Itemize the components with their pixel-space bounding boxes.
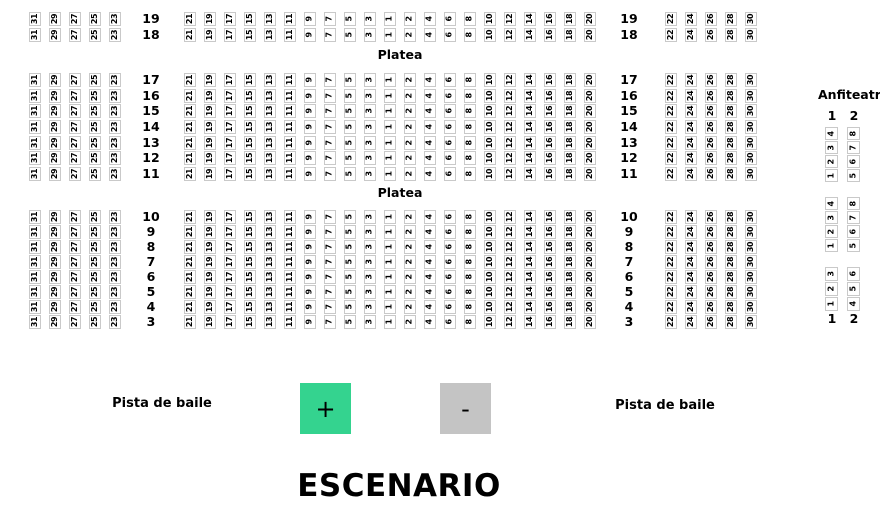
seat[interactable]: 15 — [244, 89, 256, 103]
seat[interactable]: 22 — [665, 255, 677, 269]
seat[interactable]: 29 — [49, 73, 61, 87]
seat[interactable]: 17 — [224, 89, 236, 103]
seat[interactable]: 28 — [725, 151, 737, 165]
seat[interactable]: 8 — [464, 12, 476, 26]
seat[interactable]: 8 — [847, 197, 860, 210]
seat[interactable]: 7 — [324, 300, 336, 314]
seat[interactable]: 21 — [184, 104, 196, 118]
seat[interactable]: 8 — [464, 89, 476, 103]
seat[interactable]: 7 — [324, 136, 336, 150]
seat[interactable]: 17 — [224, 240, 236, 254]
seat[interactable]: 31 — [29, 151, 41, 165]
seat[interactable]: 1 — [384, 151, 396, 165]
seat[interactable]: 17 — [224, 255, 236, 269]
seat[interactable]: 4 — [424, 120, 436, 134]
seat[interactable]: 26 — [705, 285, 717, 299]
seat[interactable]: 17 — [224, 225, 236, 239]
seat[interactable]: 1 — [825, 239, 838, 252]
seat[interactable]: 20 — [584, 240, 596, 254]
seat[interactable]: 2 — [825, 282, 838, 296]
seat[interactable]: 7 — [324, 73, 336, 87]
seat[interactable]: 10 — [484, 136, 496, 150]
seat[interactable]: 7 — [324, 240, 336, 254]
seat[interactable]: 20 — [584, 167, 596, 181]
seat[interactable]: 19 — [204, 120, 216, 134]
seat[interactable]: 28 — [725, 120, 737, 134]
seat[interactable]: 9 — [304, 270, 316, 284]
seat[interactable]: 24 — [685, 167, 697, 181]
seat[interactable]: 5 — [344, 136, 356, 150]
seat[interactable]: 23 — [109, 136, 121, 150]
seat[interactable]: 31 — [29, 167, 41, 181]
seat[interactable]: 28 — [725, 167, 737, 181]
seat[interactable]: 27 — [69, 225, 81, 239]
seat[interactable]: 8 — [464, 104, 476, 118]
seat[interactable]: 17 — [224, 136, 236, 150]
seat[interactable]: 10 — [484, 225, 496, 239]
seat[interactable]: 13 — [264, 240, 276, 254]
seat[interactable]: 1 — [384, 104, 396, 118]
seat[interactable]: 4 — [424, 225, 436, 239]
seat[interactable]: 31 — [29, 104, 41, 118]
seat[interactable]: 10 — [484, 210, 496, 224]
seat[interactable]: 15 — [244, 136, 256, 150]
seat[interactable]: 30 — [745, 210, 757, 224]
seat[interactable]: 2 — [404, 315, 416, 329]
seat[interactable]: 15 — [244, 315, 256, 329]
seat[interactable]: 8 — [847, 127, 860, 140]
seat[interactable]: 29 — [49, 240, 61, 254]
seat[interactable]: 2 — [404, 151, 416, 165]
seat[interactable]: 6 — [847, 155, 860, 168]
seat[interactable]: 11 — [284, 300, 296, 314]
seat[interactable]: 12 — [504, 240, 516, 254]
seat[interactable]: 16 — [544, 120, 556, 134]
seat[interactable]: 25 — [89, 89, 101, 103]
seat[interactable]: 22 — [665, 136, 677, 150]
seat[interactable]: 5 — [847, 239, 860, 252]
seat[interactable]: 12 — [504, 225, 516, 239]
seat[interactable]: 18 — [564, 167, 576, 181]
seat[interactable]: 29 — [49, 151, 61, 165]
seat[interactable]: 20 — [584, 151, 596, 165]
seat[interactable]: 30 — [745, 167, 757, 181]
seat[interactable]: 3 — [364, 300, 376, 314]
seat[interactable]: 22 — [665, 120, 677, 134]
seat[interactable]: 21 — [184, 167, 196, 181]
seat[interactable]: 17 — [224, 167, 236, 181]
seat[interactable]: 29 — [49, 120, 61, 134]
seat[interactable]: 29 — [49, 225, 61, 239]
seat[interactable]: 22 — [665, 28, 677, 42]
seat[interactable]: 18 — [564, 12, 576, 26]
seat[interactable]: 11 — [284, 120, 296, 134]
seat[interactable]: 17 — [224, 300, 236, 314]
seat[interactable]: 12 — [504, 315, 516, 329]
seat[interactable]: 2 — [404, 12, 416, 26]
seat[interactable]: 9 — [304, 89, 316, 103]
seat[interactable]: 2 — [404, 285, 416, 299]
seat[interactable]: 20 — [584, 210, 596, 224]
seat[interactable]: 31 — [29, 255, 41, 269]
seat[interactable]: 30 — [745, 315, 757, 329]
seat[interactable]: 4 — [424, 104, 436, 118]
seat[interactable]: 25 — [89, 315, 101, 329]
seat[interactable]: 30 — [745, 285, 757, 299]
seat[interactable]: 18 — [564, 73, 576, 87]
seat[interactable]: 4 — [424, 73, 436, 87]
seat[interactable]: 8 — [464, 28, 476, 42]
seat[interactable]: 17 — [224, 73, 236, 87]
seat[interactable]: 15 — [244, 255, 256, 269]
seat[interactable]: 30 — [745, 89, 757, 103]
seat[interactable]: 24 — [685, 89, 697, 103]
seat[interactable]: 24 — [685, 270, 697, 284]
seat[interactable]: 23 — [109, 104, 121, 118]
seat[interactable]: 25 — [89, 270, 101, 284]
seat[interactable]: 22 — [665, 89, 677, 103]
seat[interactable]: 5 — [847, 282, 860, 296]
seat[interactable]: 22 — [665, 167, 677, 181]
seat[interactable]: 10 — [484, 167, 496, 181]
seat[interactable]: 13 — [264, 225, 276, 239]
seat[interactable]: 25 — [89, 12, 101, 26]
seat[interactable]: 9 — [304, 12, 316, 26]
seat[interactable]: 2 — [404, 210, 416, 224]
seat[interactable]: 24 — [685, 12, 697, 26]
seat[interactable]: 30 — [745, 12, 757, 26]
seat[interactable]: 28 — [725, 255, 737, 269]
seat[interactable]: 23 — [109, 240, 121, 254]
seat[interactable]: 21 — [184, 210, 196, 224]
seat[interactable]: 4 — [424, 151, 436, 165]
seat[interactable]: 9 — [304, 210, 316, 224]
seat[interactable]: 12 — [504, 28, 516, 42]
seat[interactable]: 14 — [524, 255, 536, 269]
seat[interactable]: 11 — [284, 315, 296, 329]
seat[interactable]: 4 — [424, 285, 436, 299]
seat[interactable]: 26 — [705, 167, 717, 181]
seat[interactable]: 25 — [89, 255, 101, 269]
seat[interactable]: 11 — [284, 270, 296, 284]
seat[interactable]: 6 — [444, 270, 456, 284]
seat[interactable]: 20 — [584, 73, 596, 87]
seat[interactable]: 28 — [725, 12, 737, 26]
seat[interactable]: 17 — [224, 285, 236, 299]
seat[interactable]: 25 — [89, 240, 101, 254]
seat[interactable]: 17 — [224, 210, 236, 224]
seat[interactable]: 10 — [484, 240, 496, 254]
seat[interactable]: 1 — [384, 255, 396, 269]
seat[interactable]: 10 — [484, 28, 496, 42]
seat[interactable]: 19 — [204, 136, 216, 150]
seat[interactable]: 7 — [324, 285, 336, 299]
seat[interactable]: 16 — [544, 151, 556, 165]
seat[interactable]: 20 — [584, 28, 596, 42]
seat[interactable]: 16 — [544, 315, 556, 329]
seat[interactable]: 5 — [344, 104, 356, 118]
seat[interactable]: 25 — [89, 136, 101, 150]
seat[interactable]: 23 — [109, 270, 121, 284]
seat[interactable]: 9 — [304, 285, 316, 299]
seat[interactable]: 7 — [324, 104, 336, 118]
seat[interactable]: 24 — [685, 255, 697, 269]
seat[interactable]: 4 — [825, 197, 838, 210]
seat[interactable]: 24 — [685, 300, 697, 314]
seat[interactable]: 2 — [825, 225, 838, 238]
seat[interactable]: 4 — [424, 210, 436, 224]
seat[interactable]: 12 — [504, 285, 516, 299]
seat[interactable]: 23 — [109, 73, 121, 87]
seat[interactable]: 22 — [665, 270, 677, 284]
seat[interactable]: 20 — [584, 89, 596, 103]
seat[interactable]: 22 — [665, 300, 677, 314]
seat[interactable]: 15 — [244, 300, 256, 314]
seat[interactable]: 22 — [665, 73, 677, 87]
seat[interactable]: 8 — [464, 255, 476, 269]
seat[interactable]: 14 — [524, 167, 536, 181]
seat[interactable]: 11 — [284, 167, 296, 181]
seat[interactable]: 13 — [264, 73, 276, 87]
seat[interactable]: 9 — [304, 255, 316, 269]
seat[interactable]: 1 — [384, 300, 396, 314]
seat[interactable]: 3 — [364, 136, 376, 150]
seat[interactable]: 29 — [49, 210, 61, 224]
seat[interactable]: 8 — [464, 136, 476, 150]
seat[interactable]: 21 — [184, 255, 196, 269]
seat[interactable]: 13 — [264, 28, 276, 42]
seat[interactable]: 26 — [705, 210, 717, 224]
seat[interactable]: 30 — [745, 73, 757, 87]
seat[interactable]: 3 — [364, 255, 376, 269]
seat[interactable]: 1 — [384, 167, 396, 181]
seat[interactable]: 30 — [745, 270, 757, 284]
seat[interactable]: 10 — [484, 73, 496, 87]
seat[interactable]: 28 — [725, 89, 737, 103]
seat[interactable]: 18 — [564, 255, 576, 269]
seat[interactable]: 31 — [29, 315, 41, 329]
seat[interactable]: 15 — [244, 270, 256, 284]
seat[interactable]: 15 — [244, 73, 256, 87]
seat[interactable]: 20 — [584, 315, 596, 329]
seat[interactable]: 12 — [504, 151, 516, 165]
seat[interactable]: 13 — [264, 136, 276, 150]
seat[interactable]: 23 — [109, 225, 121, 239]
seat[interactable]: 15 — [244, 167, 256, 181]
seat[interactable]: 30 — [745, 120, 757, 134]
seat[interactable]: 7 — [847, 141, 860, 154]
seat[interactable]: 13 — [264, 151, 276, 165]
seat[interactable]: 6 — [444, 12, 456, 26]
seat[interactable]: 16 — [544, 167, 556, 181]
seat[interactable]: 9 — [304, 151, 316, 165]
seat[interactable]: 17 — [224, 151, 236, 165]
seat[interactable]: 5 — [344, 120, 356, 134]
seat[interactable]: 24 — [685, 285, 697, 299]
seat[interactable]: 14 — [524, 136, 536, 150]
seat[interactable]: 31 — [29, 225, 41, 239]
seat[interactable]: 27 — [69, 285, 81, 299]
seat[interactable]: 18 — [564, 136, 576, 150]
seat[interactable]: 28 — [725, 73, 737, 87]
seat[interactable]: 14 — [524, 300, 536, 314]
seat[interactable]: 18 — [564, 300, 576, 314]
seat[interactable]: 11 — [284, 89, 296, 103]
seat[interactable]: 5 — [344, 225, 356, 239]
seat[interactable]: 17 — [224, 12, 236, 26]
seat[interactable]: 7 — [324, 225, 336, 239]
seat[interactable]: 28 — [725, 300, 737, 314]
seat[interactable]: 1 — [384, 73, 396, 87]
seat[interactable]: 18 — [564, 210, 576, 224]
seat[interactable]: 6 — [847, 267, 860, 281]
seat[interactable]: 3 — [825, 141, 838, 154]
seat[interactable]: 9 — [304, 120, 316, 134]
seat[interactable]: 21 — [184, 151, 196, 165]
seat[interactable]: 7 — [324, 270, 336, 284]
seat[interactable]: 8 — [464, 315, 476, 329]
seat[interactable]: 21 — [184, 240, 196, 254]
seat[interactable]: 2 — [404, 225, 416, 239]
zoom-in-button[interactable]: + — [300, 383, 351, 434]
seat[interactable]: 31 — [29, 285, 41, 299]
seat[interactable]: 15 — [244, 12, 256, 26]
seat[interactable]: 19 — [204, 104, 216, 118]
seat[interactable]: 21 — [184, 73, 196, 87]
seat[interactable]: 7 — [324, 255, 336, 269]
seat[interactable]: 7 — [324, 120, 336, 134]
seat[interactable]: 10 — [484, 104, 496, 118]
seat[interactable]: 22 — [665, 210, 677, 224]
seat[interactable]: 18 — [564, 315, 576, 329]
seat[interactable]: 22 — [665, 285, 677, 299]
seat[interactable]: 1 — [384, 240, 396, 254]
seat[interactable]: 7 — [324, 151, 336, 165]
seat[interactable]: 4 — [424, 300, 436, 314]
seat[interactable]: 1 — [384, 210, 396, 224]
seat[interactable]: 5 — [344, 240, 356, 254]
seat[interactable]: 27 — [69, 300, 81, 314]
seat[interactable]: 16 — [544, 285, 556, 299]
seat[interactable]: 11 — [284, 285, 296, 299]
seat[interactable]: 19 — [204, 255, 216, 269]
seat[interactable]: 10 — [484, 285, 496, 299]
seat[interactable]: 13 — [264, 300, 276, 314]
seat[interactable]: 19 — [204, 285, 216, 299]
seat[interactable]: 7 — [324, 12, 336, 26]
seat[interactable]: 27 — [69, 104, 81, 118]
seat[interactable]: 25 — [89, 151, 101, 165]
seat[interactable]: 23 — [109, 89, 121, 103]
seat[interactable]: 29 — [49, 315, 61, 329]
seat[interactable]: 5 — [344, 12, 356, 26]
seat[interactable]: 30 — [745, 136, 757, 150]
seat[interactable]: 10 — [484, 151, 496, 165]
seat[interactable]: 22 — [665, 225, 677, 239]
seat[interactable]: 24 — [685, 73, 697, 87]
seat[interactable]: 14 — [524, 104, 536, 118]
seat[interactable]: 16 — [544, 270, 556, 284]
seat[interactable]: 24 — [685, 225, 697, 239]
seat[interactable]: 11 — [284, 240, 296, 254]
seat[interactable]: 30 — [745, 225, 757, 239]
seat[interactable]: 6 — [444, 300, 456, 314]
seat[interactable]: 9 — [304, 136, 316, 150]
seat[interactable]: 18 — [564, 270, 576, 284]
seat[interactable]: 1 — [384, 285, 396, 299]
seat[interactable]: 6 — [847, 225, 860, 238]
seat[interactable]: 11 — [284, 210, 296, 224]
seat[interactable]: 1 — [384, 270, 396, 284]
seat[interactable]: 18 — [564, 120, 576, 134]
seat[interactable]: 30 — [745, 151, 757, 165]
seat[interactable]: 30 — [745, 104, 757, 118]
seat[interactable]: 13 — [264, 270, 276, 284]
seat[interactable]: 14 — [524, 210, 536, 224]
seat[interactable]: 3 — [364, 28, 376, 42]
seat[interactable]: 29 — [49, 28, 61, 42]
seat[interactable]: 8 — [464, 285, 476, 299]
seat[interactable]: 16 — [544, 12, 556, 26]
seat[interactable]: 11 — [284, 255, 296, 269]
seat[interactable]: 26 — [705, 270, 717, 284]
seat[interactable]: 31 — [29, 28, 41, 42]
seat[interactable]: 23 — [109, 12, 121, 26]
seat[interactable]: 4 — [424, 240, 436, 254]
seat[interactable]: 7 — [324, 210, 336, 224]
seat[interactable]: 23 — [109, 285, 121, 299]
seat[interactable]: 1 — [384, 136, 396, 150]
seat[interactable]: 10 — [484, 89, 496, 103]
seat[interactable]: 26 — [705, 151, 717, 165]
seat[interactable]: 3 — [364, 12, 376, 26]
seat[interactable]: 29 — [49, 167, 61, 181]
seat[interactable]: 5 — [344, 151, 356, 165]
seat[interactable]: 25 — [89, 167, 101, 181]
seat[interactable]: 11 — [284, 28, 296, 42]
seat[interactable]: 6 — [444, 255, 456, 269]
seat[interactable]: 31 — [29, 120, 41, 134]
seat[interactable]: 13 — [264, 89, 276, 103]
seat[interactable]: 6 — [444, 104, 456, 118]
seat[interactable]: 8 — [464, 210, 476, 224]
seat[interactable]: 23 — [109, 151, 121, 165]
seat[interactable]: 22 — [665, 104, 677, 118]
seat[interactable]: 16 — [544, 28, 556, 42]
seat[interactable]: 5 — [344, 270, 356, 284]
seat[interactable]: 7 — [324, 89, 336, 103]
seat[interactable]: 16 — [544, 104, 556, 118]
seat[interactable]: 13 — [264, 120, 276, 134]
seat[interactable]: 12 — [504, 300, 516, 314]
seat[interactable]: 2 — [404, 300, 416, 314]
seat[interactable]: 3 — [364, 73, 376, 87]
seat[interactable]: 31 — [29, 89, 41, 103]
seat[interactable]: 8 — [464, 225, 476, 239]
seat[interactable]: 10 — [484, 12, 496, 26]
seat[interactable]: 19 — [204, 240, 216, 254]
seat[interactable]: 25 — [89, 300, 101, 314]
seat[interactable]: 8 — [464, 120, 476, 134]
seat[interactable]: 13 — [264, 315, 276, 329]
seat[interactable]: 22 — [665, 240, 677, 254]
seat[interactable]: 9 — [304, 73, 316, 87]
seat[interactable]: 5 — [344, 285, 356, 299]
seat[interactable]: 3 — [364, 151, 376, 165]
seat[interactable]: 2 — [404, 73, 416, 87]
seat[interactable]: 2 — [404, 120, 416, 134]
seat[interactable]: 2 — [404, 240, 416, 254]
